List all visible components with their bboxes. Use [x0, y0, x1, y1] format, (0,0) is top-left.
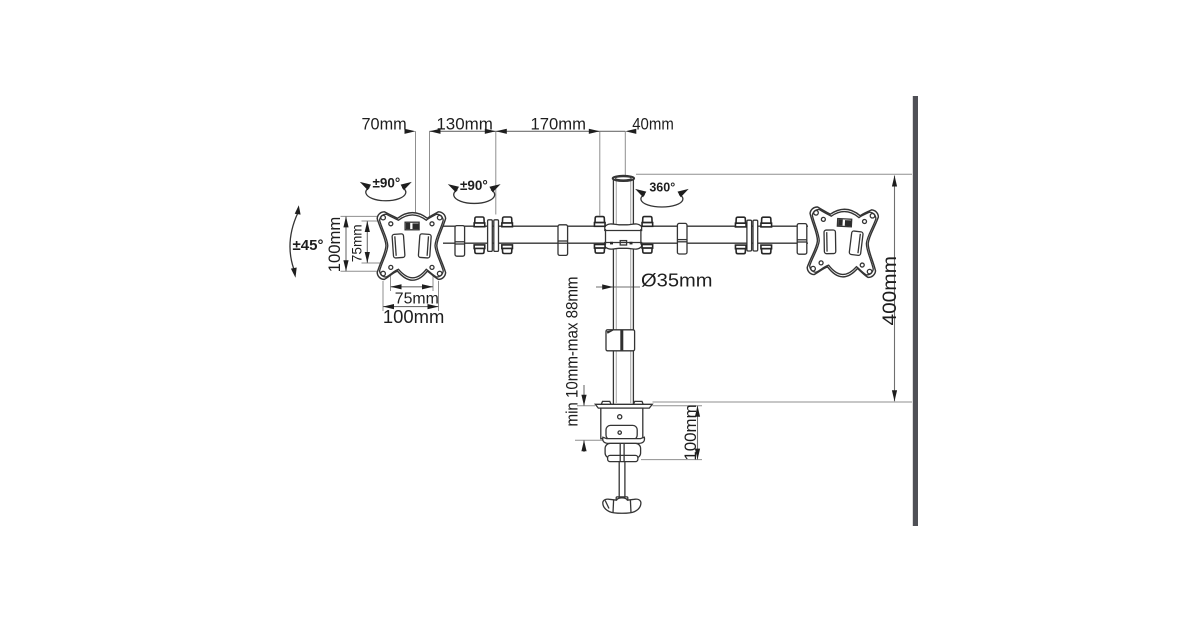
svg-text:75mm: 75mm — [349, 224, 365, 262]
svg-text:360°: 360° — [649, 181, 675, 195]
svg-text:40mm: 40mm — [632, 114, 674, 133]
svg-text:400mm: 400mm — [879, 256, 901, 325]
svg-text:Ø35mm: Ø35mm — [641, 270, 713, 291]
svg-text:130mm: 130mm — [436, 114, 493, 133]
svg-text:min 10mm-max 88mm: min 10mm-max 88mm — [564, 277, 582, 427]
svg-text:100mm: 100mm — [326, 217, 344, 273]
svg-text:±90°: ±90° — [460, 178, 488, 193]
svg-text:100mm: 100mm — [383, 307, 444, 327]
svg-text:75mm: 75mm — [395, 290, 439, 307]
svg-text:±90°: ±90° — [372, 176, 400, 191]
svg-text:170mm: 170mm — [530, 114, 586, 133]
svg-text:70mm: 70mm — [362, 114, 407, 133]
svg-text:±45°: ±45° — [293, 237, 324, 254]
svg-text:100mm: 100mm — [681, 404, 700, 460]
